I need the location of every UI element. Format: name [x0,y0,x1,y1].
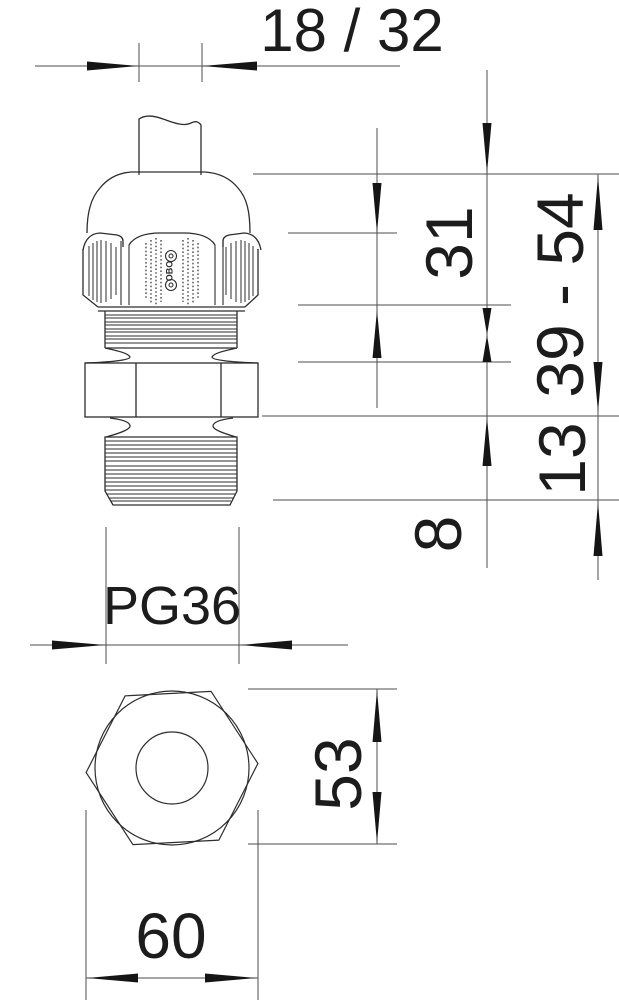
knurl-hatch-left [89,240,116,303]
dim-label-39-54: 39 - 54 [527,192,593,397]
dim-label-53: 53 [305,737,371,810]
dim-label-pg36: PG36 [103,579,241,633]
thread-section [105,437,237,505]
technical-drawing-canvas: 18 / 32 31 39 - 54 13 8 PG36 53 60 OBO [0,0,619,1000]
hexagon-outline [82,689,262,847]
dim-label-cable-range: 18 / 32 [260,1,444,61]
obo-logo-text: OBO [166,261,175,282]
knurl-hatch-right [226,240,253,303]
dim-label-8: 8 [405,516,471,553]
ribbed-section [105,311,237,348]
dim-label-13: 13 [529,422,595,495]
lower-neck [106,418,130,437]
dim-label-31: 31 [416,206,482,279]
drawing-linework [0,0,619,1000]
bottom-view [82,689,262,847]
front-view [83,116,261,505]
cap-dome-outline [87,172,250,233]
dim-label-60: 60 [135,904,206,968]
bore-circle [136,732,208,804]
upper-neck [85,348,130,363]
hex-nut [85,363,258,417]
dimension-lines [30,43,619,1000]
cable-outline [139,116,201,175]
